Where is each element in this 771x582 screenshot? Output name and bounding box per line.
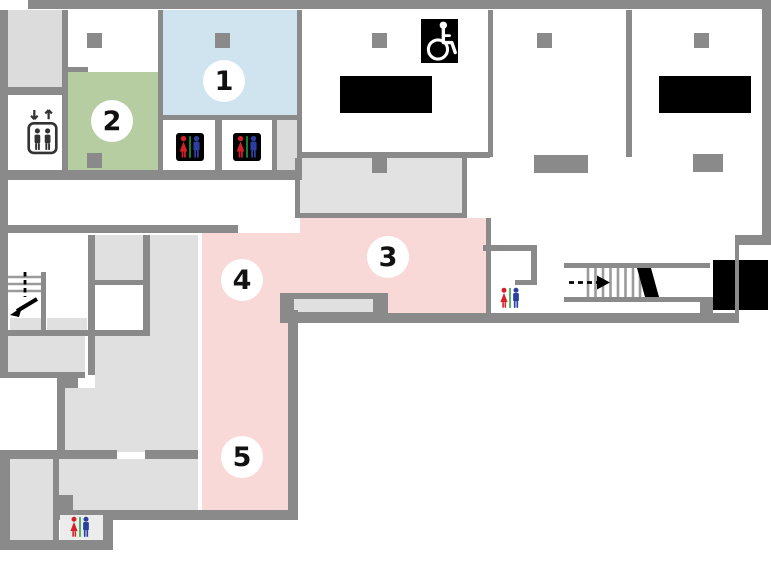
wall: [88, 280, 143, 285]
wall: [68, 67, 88, 72]
pillar: [87, 153, 102, 168]
area-marker-5[interactable]: 5: [221, 436, 263, 478]
pillar: [87, 33, 102, 48]
floor-plan: 1 2 3 4 5: [0, 0, 771, 582]
wall: [462, 158, 467, 215]
wall: [0, 10, 8, 378]
wall: [486, 218, 491, 313]
wall: [41, 272, 46, 330]
room-a: [95, 235, 143, 280]
room-d: [65, 388, 198, 452]
pillar: [537, 33, 552, 48]
wall: [143, 235, 150, 330]
wall: [488, 10, 493, 157]
wall: [295, 313, 738, 323]
elevator-icon: [25, 108, 60, 155]
wall: [88, 235, 95, 375]
wall: [534, 155, 588, 173]
room-small-gray: [277, 120, 297, 170]
wall: [626, 10, 632, 157]
wall: [8, 87, 62, 95]
wall: [0, 225, 238, 233]
wall: [735, 245, 739, 323]
wall: [145, 450, 198, 459]
wall: [58, 495, 73, 510]
pillar: [372, 158, 387, 173]
stage-block: [340, 76, 432, 113]
wall: [295, 158, 300, 215]
wall: [272, 120, 277, 170]
wall: [158, 10, 163, 173]
stairs-icon: [564, 268, 710, 297]
stage-block: [659, 76, 751, 113]
pillar: [694, 33, 709, 48]
wall: [0, 170, 302, 180]
wall: [28, 0, 762, 9]
area-marker-4[interactable]: 4: [221, 259, 263, 301]
area-marker-2[interactable]: 2: [91, 100, 133, 142]
restroom-icon: [233, 133, 261, 161]
wall: [531, 251, 537, 283]
wall: [288, 310, 298, 520]
wheelchair-accessible-icon: [421, 19, 458, 63]
stair-landing: [47, 318, 87, 330]
wall: [0, 450, 10, 550]
wall: [735, 235, 771, 245]
wall: [103, 520, 113, 550]
stairs-down-icon: [8, 272, 41, 320]
pillar: [215, 33, 230, 48]
wall: [0, 540, 113, 550]
wall: [57, 378, 65, 454]
wall: [564, 297, 710, 302]
wall: [483, 245, 537, 251]
area-marker-1[interactable]: 1: [203, 60, 245, 102]
restroom-icon: [66, 515, 94, 539]
wall: [693, 154, 723, 172]
wall: [515, 280, 537, 285]
room-f: [59, 459, 198, 510]
wall: [762, 0, 771, 245]
restroom-icon: [176, 133, 204, 161]
room-e: [10, 459, 53, 540]
pillar: [372, 33, 387, 48]
area-5-room: [202, 313, 288, 510]
restroom-icon: [496, 286, 524, 310]
area-3-room: [300, 218, 488, 233]
area-marker-3[interactable]: 3: [367, 236, 409, 278]
wall: [62, 10, 68, 173]
room-c: [8, 336, 85, 372]
room-top-left: [8, 10, 62, 87]
wall: [0, 330, 150, 336]
stair-block-tread: [294, 299, 373, 312]
wall: [0, 450, 117, 459]
wall: [295, 213, 467, 218]
wall: [297, 10, 302, 173]
wall: [215, 120, 222, 170]
shaft-block: [713, 260, 768, 310]
